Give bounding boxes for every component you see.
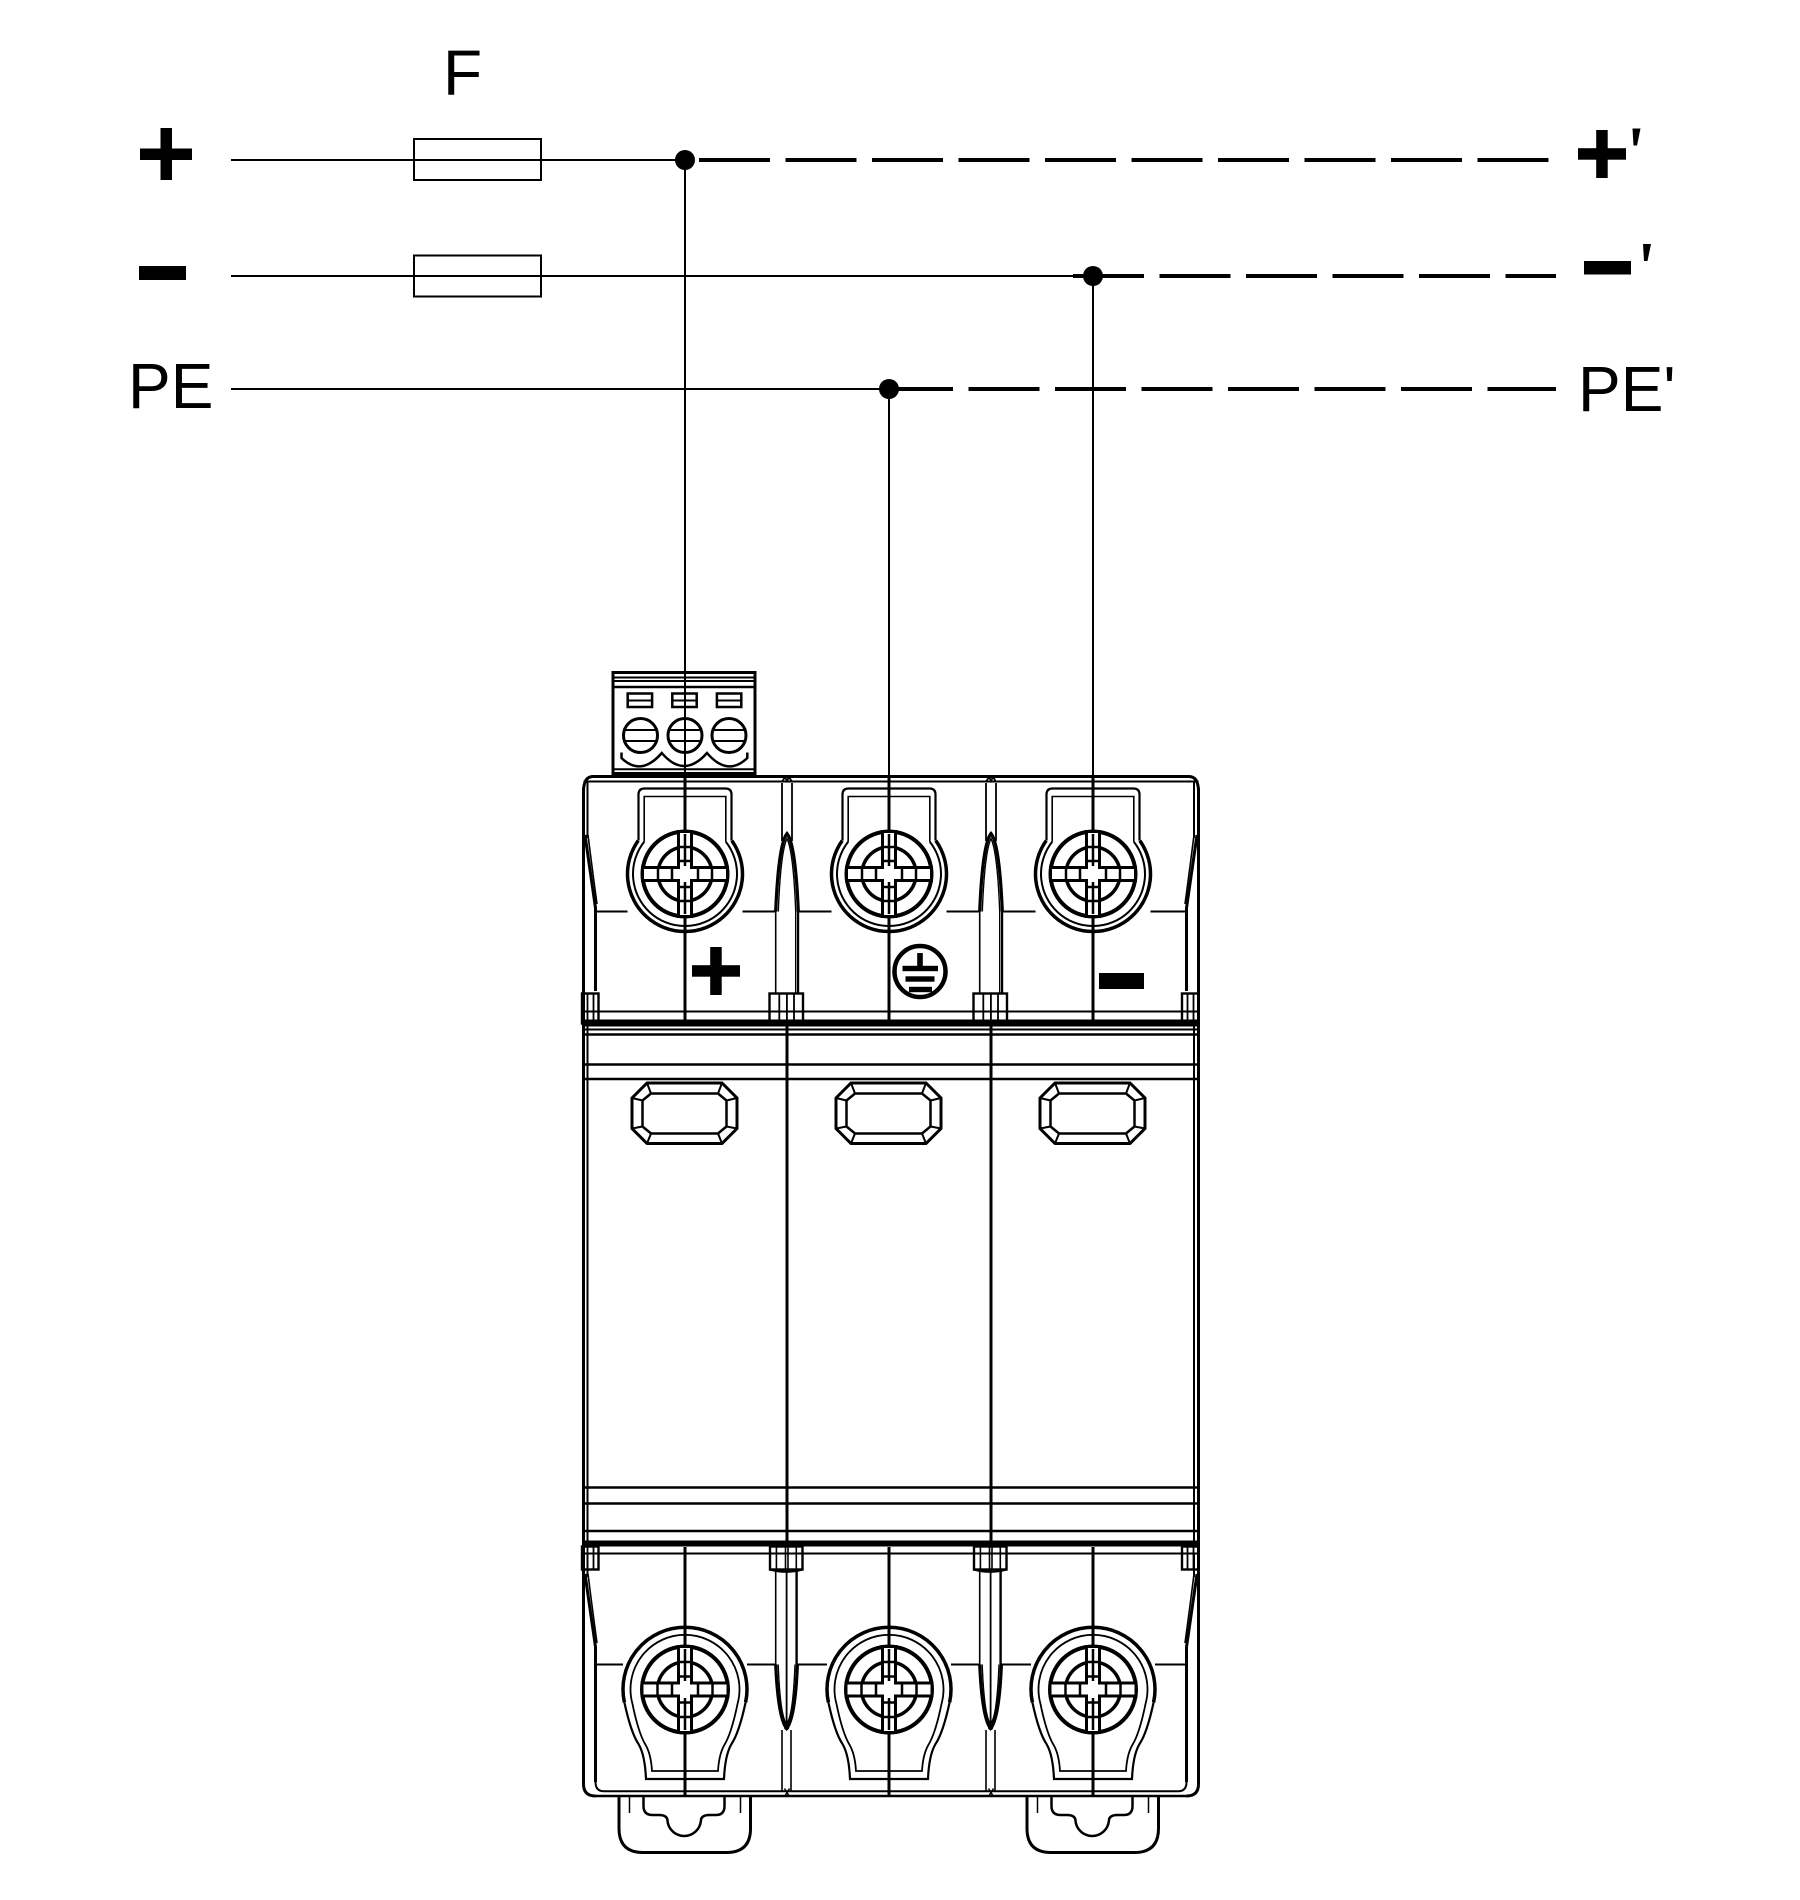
svg-text:F: F [443, 37, 482, 109]
svg-text:PE: PE [128, 350, 213, 422]
svg-text:PE': PE' [1578, 353, 1676, 425]
